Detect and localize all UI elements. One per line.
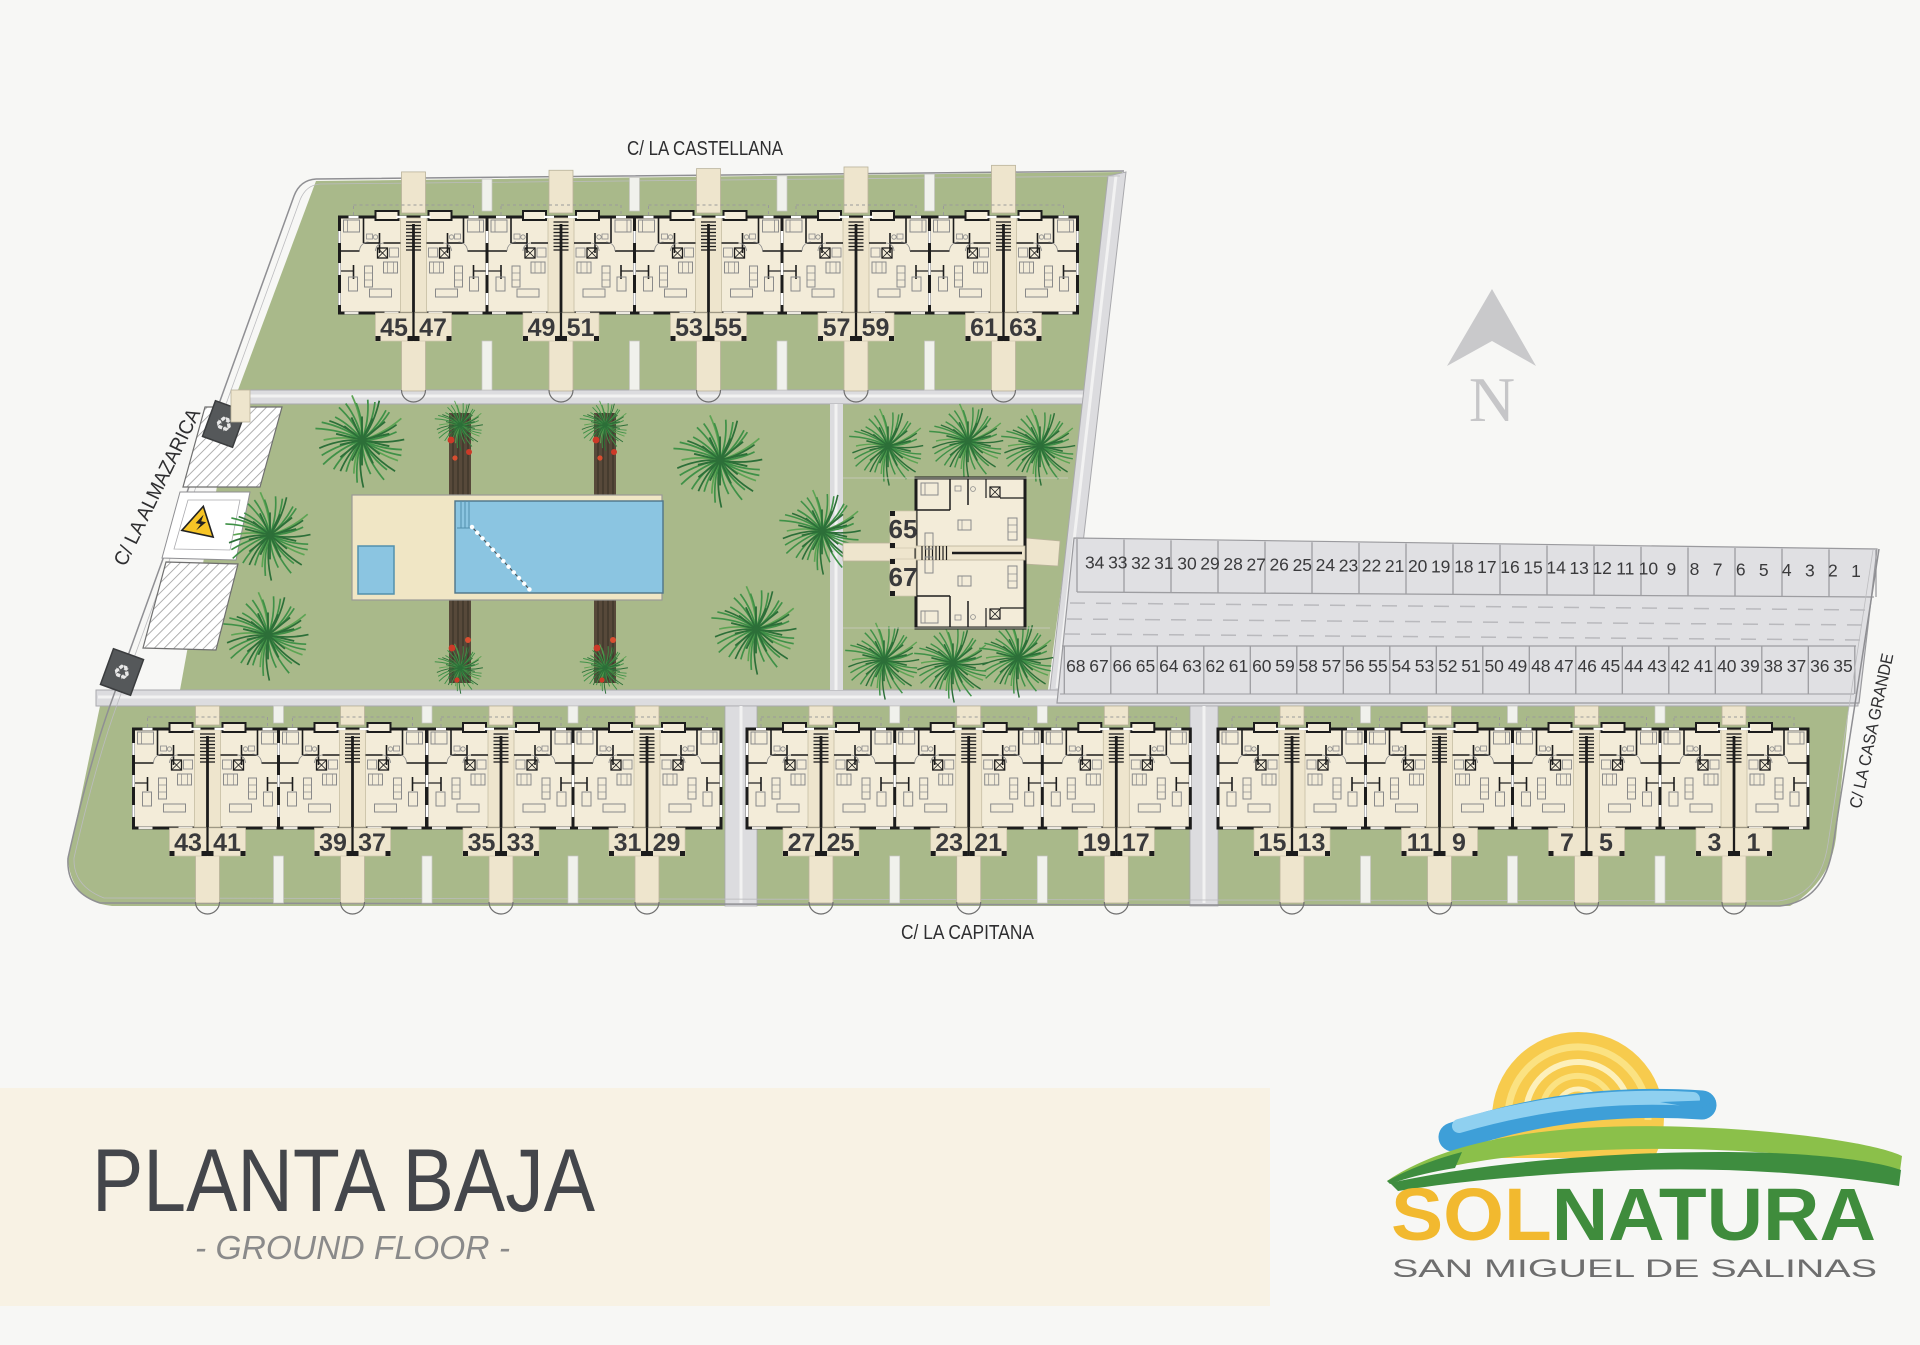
svg-text:33: 33	[1108, 553, 1127, 573]
svg-text:54: 54	[1391, 656, 1411, 676]
svg-text:24: 24	[1316, 555, 1336, 575]
svg-text:12: 12	[1592, 558, 1611, 578]
svg-text:30: 30	[1177, 554, 1197, 574]
svg-text:55: 55	[714, 314, 742, 342]
svg-text:60: 60	[1252, 656, 1272, 676]
svg-text:31: 31	[614, 829, 642, 857]
svg-text:- GROUND FLOOR -: - GROUND FLOOR -	[195, 1229, 510, 1266]
svg-text:14: 14	[1546, 558, 1566, 578]
svg-text:1: 1	[1851, 561, 1861, 581]
svg-text:43: 43	[174, 829, 202, 857]
svg-text:10: 10	[1639, 559, 1659, 579]
svg-text:20: 20	[1408, 556, 1428, 576]
svg-text:47: 47	[1554, 656, 1573, 676]
svg-text:6: 6	[1736, 560, 1746, 580]
svg-text:67: 67	[889, 562, 918, 592]
svg-text:8: 8	[1690, 559, 1700, 579]
svg-text:42: 42	[1670, 656, 1689, 676]
svg-text:39: 39	[319, 829, 347, 857]
svg-text:53: 53	[1415, 656, 1434, 676]
svg-text:44: 44	[1624, 656, 1644, 676]
svg-text:58: 58	[1298, 656, 1317, 676]
svg-text:61: 61	[970, 314, 998, 342]
svg-text:17: 17	[1477, 557, 1496, 577]
svg-text:56: 56	[1345, 656, 1364, 676]
svg-text:63: 63	[1182, 656, 1201, 676]
svg-text:37: 37	[1787, 656, 1806, 676]
svg-text:13: 13	[1298, 829, 1326, 857]
svg-text:29: 29	[1200, 554, 1219, 574]
svg-text:SAN MIGUEL DE SALINAS: SAN MIGUEL DE SALINAS	[1392, 1255, 1877, 1283]
svg-text:68: 68	[1066, 656, 1085, 676]
svg-text:36: 36	[1810, 656, 1829, 676]
svg-text:23: 23	[935, 829, 963, 857]
svg-text:41: 41	[1694, 656, 1713, 676]
svg-text:11: 11	[1407, 829, 1434, 857]
svg-text:43: 43	[1647, 656, 1666, 676]
svg-text:15: 15	[1259, 829, 1287, 857]
svg-text:35: 35	[1833, 656, 1852, 676]
svg-text:22: 22	[1362, 556, 1381, 576]
svg-text:4: 4	[1782, 560, 1792, 580]
svg-text:51: 51	[1461, 656, 1480, 676]
svg-text:55: 55	[1368, 656, 1387, 676]
svg-text:5: 5	[1599, 829, 1613, 857]
svg-text:47: 47	[419, 314, 447, 342]
svg-text:28: 28	[1223, 554, 1242, 574]
svg-text:65: 65	[889, 514, 918, 544]
svg-text:34: 34	[1085, 552, 1105, 572]
svg-text:39: 39	[1740, 656, 1759, 676]
svg-text:62: 62	[1205, 656, 1224, 676]
svg-text:45: 45	[1601, 656, 1620, 676]
svg-text:29: 29	[653, 829, 681, 857]
svg-text:3: 3	[1805, 561, 1815, 581]
svg-text:57: 57	[1322, 656, 1341, 676]
svg-text:63: 63	[1009, 314, 1037, 342]
svg-text:N: N	[1469, 364, 1515, 435]
svg-text:33: 33	[507, 829, 535, 857]
svg-text:46: 46	[1577, 656, 1596, 676]
svg-text:26: 26	[1269, 555, 1288, 575]
svg-text:9: 9	[1667, 559, 1677, 579]
svg-text:SOLNATURA: SOLNATURA	[1391, 1173, 1876, 1256]
svg-text:7: 7	[1713, 559, 1723, 579]
svg-text:C/ LA CAPITANA: C/ LA CAPITANA	[901, 922, 1035, 944]
svg-text:25: 25	[827, 829, 855, 857]
svg-text:45: 45	[380, 314, 408, 342]
svg-text:3: 3	[1708, 829, 1722, 857]
svg-text:23: 23	[1339, 555, 1358, 575]
svg-text:59: 59	[1275, 656, 1294, 676]
svg-text:17: 17	[1122, 829, 1150, 857]
svg-text:59: 59	[862, 314, 890, 342]
svg-text:67: 67	[1089, 656, 1108, 676]
svg-text:32: 32	[1131, 553, 1150, 573]
svg-text:PLANTA BAJA: PLANTA BAJA	[92, 1130, 596, 1230]
svg-text:65: 65	[1136, 656, 1155, 676]
svg-text:2: 2	[1828, 561, 1838, 581]
svg-text:5: 5	[1759, 560, 1769, 580]
svg-text:49: 49	[1508, 656, 1527, 676]
svg-text:51: 51	[567, 314, 595, 342]
svg-text:57: 57	[823, 314, 851, 342]
svg-text:15: 15	[1523, 557, 1542, 577]
svg-text:41: 41	[213, 829, 241, 857]
svg-text:64: 64	[1159, 656, 1179, 676]
svg-text:31: 31	[1154, 553, 1173, 573]
svg-text:1: 1	[1747, 829, 1761, 857]
svg-text:37: 37	[358, 829, 386, 857]
svg-text:7: 7	[1560, 829, 1574, 857]
svg-text:27: 27	[788, 829, 816, 857]
svg-text:48: 48	[1531, 656, 1550, 676]
svg-text:19: 19	[1083, 829, 1111, 857]
svg-text:16: 16	[1500, 557, 1519, 577]
svg-text:40: 40	[1717, 656, 1737, 676]
svg-text:50: 50	[1484, 656, 1504, 676]
svg-text:53: 53	[675, 314, 703, 342]
svg-text:13: 13	[1569, 558, 1588, 578]
svg-text:19: 19	[1431, 556, 1450, 576]
svg-text:27: 27	[1246, 554, 1265, 574]
svg-text:38: 38	[1763, 656, 1782, 676]
svg-text:25: 25	[1293, 555, 1312, 575]
svg-text:52: 52	[1438, 656, 1457, 676]
svg-text:11: 11	[1616, 558, 1634, 578]
svg-text:21: 21	[1385, 556, 1404, 576]
svg-text:61: 61	[1229, 656, 1248, 676]
svg-text:35: 35	[468, 829, 496, 857]
svg-text:66: 66	[1112, 656, 1131, 676]
svg-text:49: 49	[528, 314, 556, 342]
svg-text:C/ LA CASTELLANA: C/ LA CASTELLANA	[627, 138, 784, 160]
svg-text:9: 9	[1452, 829, 1466, 857]
svg-text:21: 21	[974, 829, 1002, 857]
svg-text:18: 18	[1454, 557, 1473, 577]
